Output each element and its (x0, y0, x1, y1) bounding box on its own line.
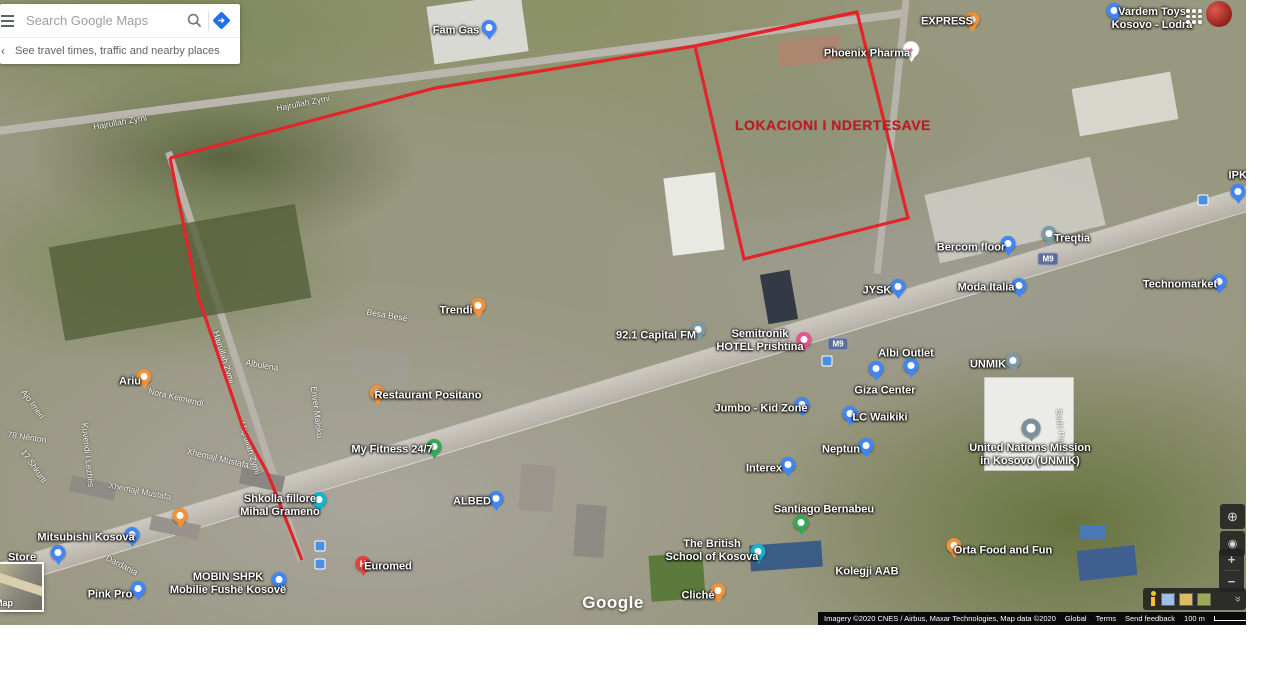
decor-tilled-field (49, 204, 312, 341)
ariu-label[interactable]: Ariu (119, 376, 141, 389)
decor-blue-roof-east (1077, 545, 1138, 581)
the-british-label[interactable]: The BritishSchool of Kosova (666, 538, 759, 564)
street-label-besa-bes: Besa Besë (366, 307, 408, 323)
divider (208, 11, 209, 31)
decor-dark-building (760, 270, 798, 324)
travel-times-hint[interactable]: ‹ See travel times, traffic and nearby p… (0, 37, 240, 64)
scale-label: 100 m (1184, 614, 1205, 623)
street-label-17-shkurti: 17 Shkurti (19, 447, 49, 484)
shkolla-fillore-label[interactable]: Shkolla filloreMihal Grameno (240, 493, 319, 519)
zoom-in-button[interactable]: + (1219, 549, 1244, 570)
globe-button[interactable]: ⊕ (1220, 504, 1245, 529)
albed-label[interactable]: ALBED (453, 496, 491, 509)
map-type-inset[interactable]: Map (0, 562, 44, 612)
jysk-pin[interactable] (891, 279, 906, 294)
street-label-78-n-ntori: 78 Nëntori (7, 429, 47, 444)
bus-stop-icon[interactable] (1198, 195, 1209, 206)
92-1-capital-fm-label[interactable]: 92.1 Capital FM (616, 330, 696, 343)
attribution-bar: Imagery ©2020 CNES / Airbus, Maxar Techn… (818, 612, 1246, 625)
interex-label[interactable]: Interex (746, 463, 782, 476)
street-label-dardania: Dardania (104, 553, 139, 578)
hint-text: See travel times, traffic and nearby pla… (15, 45, 220, 57)
neptun-pin[interactable] (859, 438, 874, 453)
trendi-pin[interactable] (471, 298, 486, 313)
giza-center-label[interactable]: Giza Center (854, 385, 915, 398)
mitsubishi-kosova-label[interactable]: Mitsubishi Kosova (37, 532, 134, 545)
lc-waikiki-label[interactable]: LC Waikiki (852, 412, 907, 425)
bus-stop-icon[interactable] (315, 541, 326, 552)
satellite-map-canvas[interactable]: LOKACIONI I NDERTESAVE Google Fam GasEXP… (0, 0, 1246, 625)
clich-label[interactable]: Cliché (681, 590, 714, 603)
zoom-control: + − (1219, 549, 1244, 592)
treqtia-label[interactable]: Treqtia (1054, 233, 1090, 246)
street-label-xhemajl-mustafa: Xhemajl Mustafa (186, 446, 250, 470)
technomarket-label[interactable]: Technomarket (1143, 279, 1217, 292)
bercom-floor-label[interactable]: Bercom floor (937, 242, 1005, 255)
decor-building-ne (1072, 72, 1179, 137)
decor-city-block-4 (518, 464, 555, 512)
jysk-label[interactable]: JYSK (863, 285, 892, 298)
apps-grid-icon[interactable] (1186, 9, 1202, 24)
layer-thumbnail-2[interactable] (1179, 593, 1193, 606)
street-label-ajo-imeri: Ajo Imeri (19, 387, 46, 420)
my-fitness-24-7-label[interactable]: My Fitness 24/7 (351, 444, 432, 457)
store-pin[interactable] (51, 545, 66, 560)
restaurant-positano-label[interactable]: Restaurant Positano (375, 390, 482, 403)
scale-bar (1214, 616, 1246, 621)
unmik-label[interactable]: UNMIK (970, 359, 1006, 372)
moda-italia-label[interactable]: Moda Italia (958, 282, 1015, 295)
decor-city-block-6 (348, 346, 412, 384)
site-title-annotation: LOKACIONI I NDERTESAVE (735, 117, 931, 133)
street-label-enver-maloku: Enver Maloku (309, 386, 325, 439)
imagery-credit: Imagery ©2020 CNES / Airbus, Maxar Techn… (824, 614, 1056, 623)
euromed-label[interactable]: Euromed (364, 561, 412, 574)
albi-outlet-label[interactable]: Albi Outlet (878, 348, 934, 361)
neptun-label[interactable]: Neptun (822, 444, 860, 457)
ipko-label[interactable]: IPKO (1229, 170, 1246, 183)
unmik-pin[interactable] (1006, 353, 1021, 368)
pegman-icon[interactable] (1148, 591, 1157, 607)
search-input[interactable] (24, 12, 187, 29)
search-icon[interactable] (187, 13, 202, 28)
fam-gas-pin[interactable] (482, 20, 497, 35)
terms-link[interactable]: Terms (1096, 614, 1116, 623)
bus-stop-icon[interactable] (315, 559, 326, 570)
send-feedback-link[interactable]: Send feedback (1125, 614, 1175, 623)
layer-thumbnail-1[interactable] (1161, 593, 1175, 606)
road-shield-m9: M9 (1037, 253, 1058, 266)
orta-food-and-fun-label[interactable]: Orta Food and Fun (954, 545, 1052, 558)
region-link[interactable]: Global (1065, 614, 1087, 623)
pink-pro-pin[interactable] (131, 581, 146, 596)
united-nations-mission-label[interactable]: United Nations Missionin Kosovo (UNMIK) (969, 442, 1091, 468)
interex-pin[interactable] (781, 457, 796, 472)
phoenix-pharma-label[interactable]: Phoenix Pharma (824, 48, 910, 61)
giza-center-pin[interactable] (869, 361, 884, 376)
google-logo-watermark: Google (582, 593, 644, 613)
pink-pro-label[interactable]: Pink Pro (88, 589, 133, 602)
street-view-bar: « (1143, 588, 1246, 610)
vardem-toys-label[interactable]: Vardem ToysKosovo - Lodra (1112, 6, 1193, 32)
street-label-albulena: Albulena (245, 357, 279, 373)
bus-stop-icon[interactable] (822, 356, 833, 367)
kolegji-aab-label[interactable]: Kolegji AAB (835, 566, 898, 579)
express-label[interactable]: EXPRESS (921, 16, 973, 29)
search-row: ➔ (0, 4, 240, 37)
mobin-shpk-label[interactable]: MOBIN SHPKMobilie Fushë Kosovë (170, 571, 286, 597)
jumbo-kid-zone-label[interactable]: Jumbo - Kid Zone (715, 403, 808, 416)
hint-caret-icon: ‹ (1, 44, 15, 58)
user-avatar[interactable] (1206, 1, 1232, 27)
directions-icon[interactable]: ➔ (212, 11, 230, 29)
street-label-xhemajl-mustafa: Xhemajl Mustafa (108, 480, 172, 502)
menu-icon[interactable] (1, 15, 14, 27)
street-label-nora-kelmendi: Nora Kelmendi (147, 386, 204, 408)
collapse-chevron-icon[interactable]: « (1232, 596, 1244, 602)
search-card: ➔ ‹ See travel times, traffic and nearby… (0, 4, 240, 64)
inset-label: Map (0, 598, 13, 608)
unlabeled-restaurant-pin[interactable] (173, 508, 188, 523)
fam-gas-label[interactable]: Fam Gas (433, 25, 479, 38)
united-nations-mission-pin[interactable] (1022, 419, 1041, 438)
decor-warehouse-white (663, 172, 724, 256)
layer-thumbnail-3[interactable] (1197, 593, 1211, 606)
decor-city-block-5 (573, 504, 607, 558)
ipko-pin[interactable] (1231, 184, 1246, 199)
santiago-bernabeu-label[interactable]: Santiago Bernabeu (774, 504, 874, 517)
road-shield-m9: M9 (827, 338, 848, 351)
semitronik-label[interactable]: SemitronikHOTEL Prishtina (716, 328, 803, 354)
santiago-bernabeu-pin[interactable] (794, 515, 809, 530)
decor-tennis-court (1080, 525, 1106, 539)
trendi-label[interactable]: Trendi (439, 305, 472, 318)
